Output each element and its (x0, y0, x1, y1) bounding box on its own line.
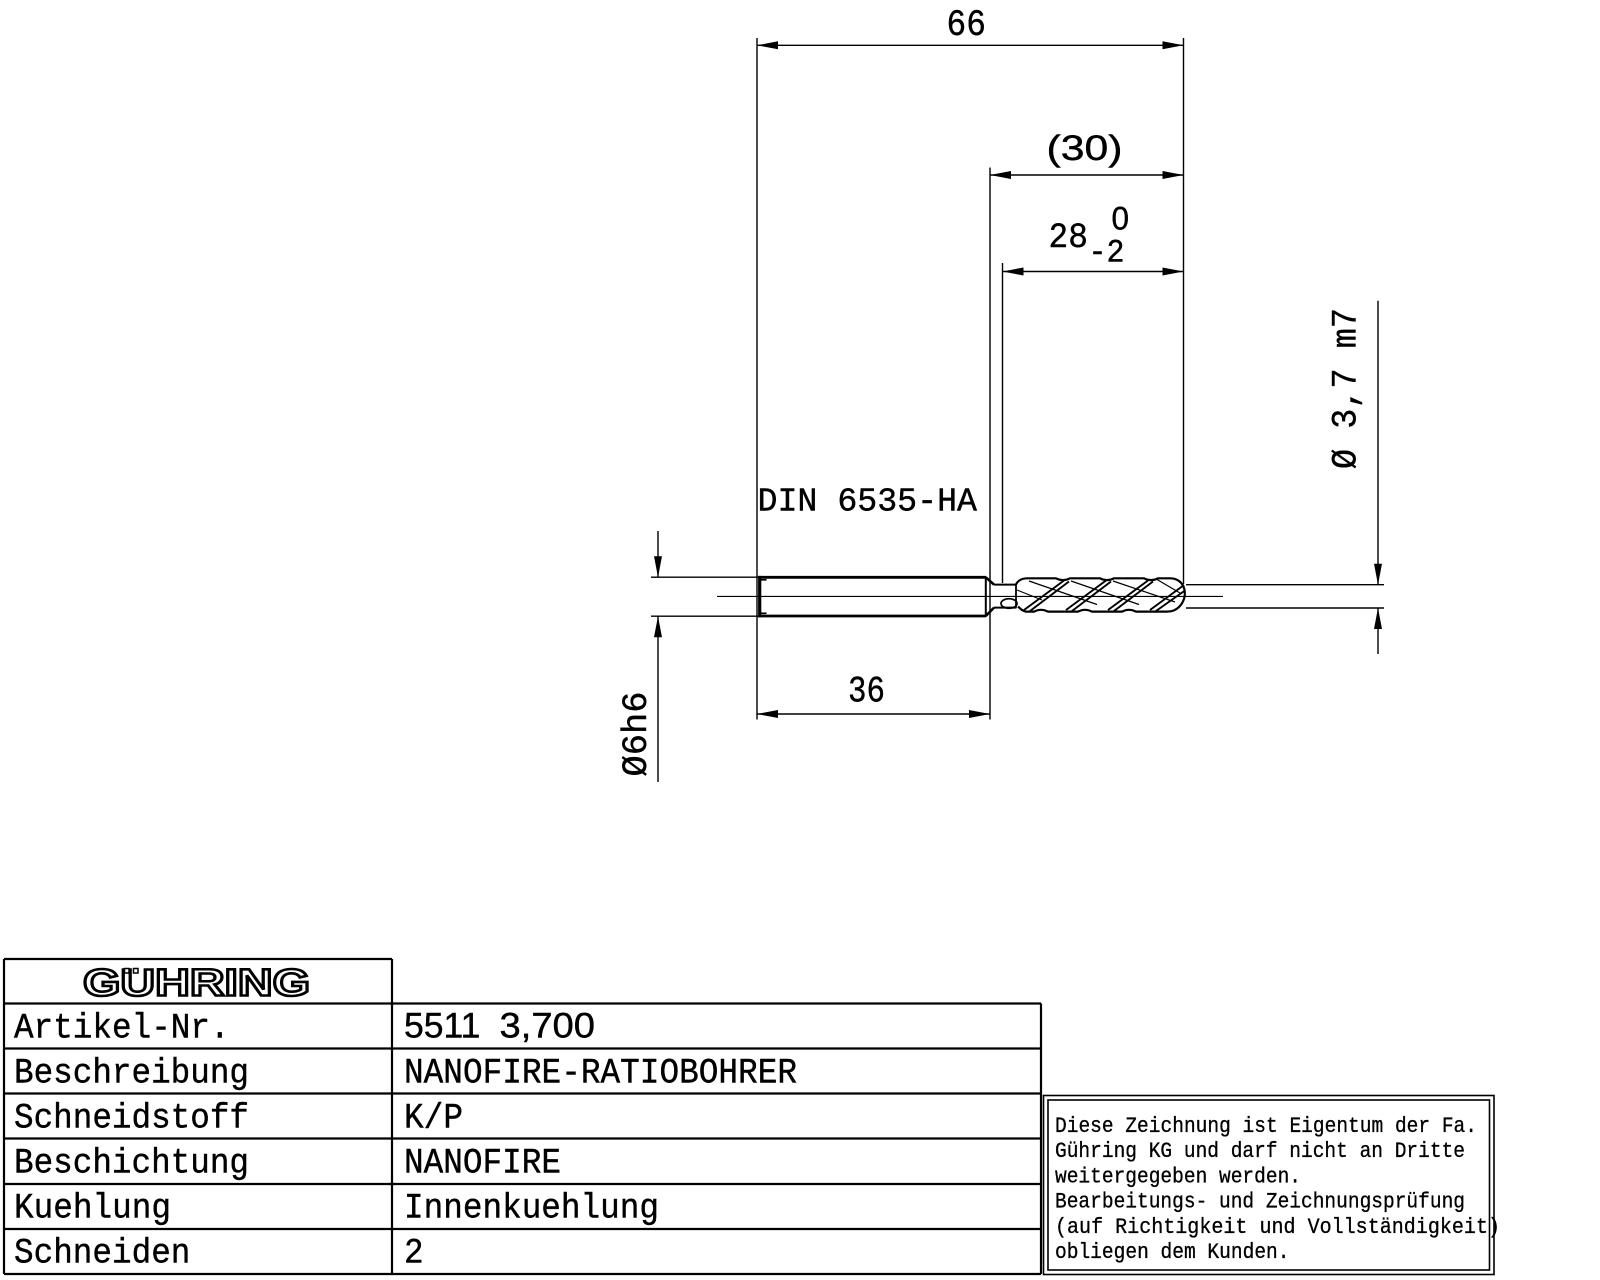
svg-text:NANOFIRE: NANOFIRE (404, 1144, 561, 1184)
svg-text:Beschichtung: Beschichtung (14, 1144, 249, 1184)
svg-text:Kuehlung: Kuehlung (14, 1189, 171, 1229)
svg-text:36: 36 (848, 672, 885, 714)
svg-text:Ø 3,7 m7: Ø 3,7 m7 (1327, 308, 1367, 469)
svg-text:Artikel-Nr.: Artikel-Nr. (14, 1009, 230, 1049)
svg-text:GUHRING: GUHRING (83, 963, 310, 1005)
svg-text:5511: 5511 (404, 1007, 480, 1046)
svg-text:obliegen dem Kunden.: obliegen dem Kunden. (1055, 1240, 1290, 1265)
svg-text:Bearbeitungs- und Zeichnungspr: Bearbeitungs- und Zeichnungsprüfung (1055, 1190, 1465, 1215)
svg-text:Gühring KG und darf nicht an D: Gühring KG und darf nicht an Dritte (1055, 1139, 1465, 1164)
svg-text:Schneiden: Schneiden (14, 1234, 190, 1274)
svg-text:NANOFIRE-RATIOBOHRER: NANOFIRE-RATIOBOHRER (404, 1054, 797, 1094)
svg-text:Diese Zeichnung ist Eigentum d: Diese Zeichnung ist Eigentum der Fa. (1055, 1114, 1477, 1139)
svg-text:(auf Richtigkeit und Vollständ: (auf Richtigkeit und Vollständigkeit) (1055, 1215, 1500, 1240)
svg-text:0: 0 (1112, 201, 1130, 237)
svg-text:66: 66 (947, 5, 986, 47)
svg-text:Innenkuehlung: Innenkuehlung (404, 1189, 659, 1229)
svg-text:K/P: K/P (404, 1099, 463, 1139)
svg-text:Schneidstoff: Schneidstoff (14, 1099, 249, 1139)
svg-text:(30): (30) (1047, 129, 1123, 168)
svg-text:Beschreibung: Beschreibung (14, 1054, 249, 1094)
svg-text:Ø6h6: Ø6h6 (617, 692, 657, 777)
svg-text:-2: -2 (1089, 235, 1125, 272)
svg-text:3,700: 3,700 (500, 1007, 596, 1046)
svg-text:28: 28 (1049, 218, 1088, 258)
svg-text:weitergegeben werden.: weitergegeben werden. (1055, 1164, 1301, 1189)
svg-text:2: 2 (404, 1234, 424, 1274)
svg-text:DIN 6535-HA: DIN 6535-HA (758, 484, 978, 521)
